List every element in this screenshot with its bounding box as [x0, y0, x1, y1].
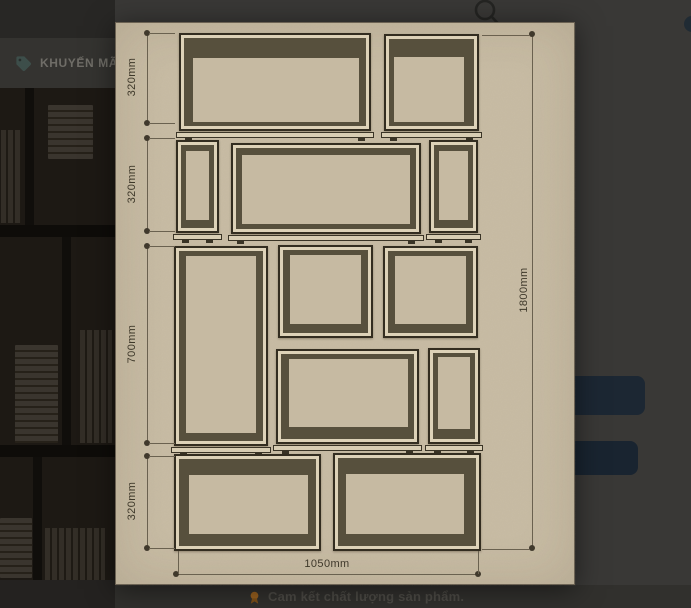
shelf-diagram: 320mm320mm700mm320mm1800mm1050mm [116, 23, 574, 584]
shelf-box [174, 246, 268, 446]
shelf-box [179, 33, 371, 131]
shelf-box [276, 349, 419, 444]
dimension-line [147, 33, 148, 123]
book-spines [1, 130, 21, 223]
dimension-line [147, 456, 148, 548]
dimension-tick [149, 33, 175, 34]
dimension-line [147, 246, 148, 443]
shelf-box-sill [273, 445, 422, 451]
dimension-tick [178, 551, 179, 574]
dimension-label: 700mm [126, 314, 138, 374]
shelf-box-opening [433, 353, 475, 439]
dimension-tick [482, 549, 530, 550]
tag-icon [14, 54, 33, 73]
shelf-box-opening [434, 145, 473, 228]
background-page-left: KHUYẾN MÃI [0, 0, 115, 608]
shelf-box-sill [176, 132, 374, 138]
shelf-divider [62, 237, 71, 445]
page: KHUYẾN MÃI Cam kết chất lượng sản phẩm. … [0, 0, 691, 608]
dimension-line [147, 138, 148, 231]
dimension-label: 320mm [126, 154, 138, 214]
book-stack [15, 345, 58, 443]
dimension-tick [149, 456, 175, 457]
lightbox-image: 320mm320mm700mm320mm1800mm1050mm [115, 22, 575, 585]
dimension-dot [529, 545, 535, 551]
dimension-line [532, 34, 533, 548]
shelf-box [176, 140, 219, 233]
dimension-tick [149, 123, 175, 124]
dimension-tick [482, 35, 530, 36]
dimension-tick [149, 231, 175, 232]
quality-note: Cam kết chất lượng sản phẩm. [268, 589, 464, 604]
shelf-box-opening [388, 251, 473, 333]
header-area [0, 0, 115, 38]
shelf-board [0, 225, 115, 237]
shelf-box-sill [381, 132, 482, 138]
shelf-box [428, 348, 480, 444]
shelf-box [429, 140, 478, 233]
shelf-box-opening [338, 458, 476, 546]
photo-floor [0, 580, 115, 608]
shelf-box-sill [228, 235, 424, 241]
dimension-tick [149, 548, 175, 549]
shelf-box [383, 246, 478, 338]
dimension-tick [149, 138, 175, 139]
shelf-box [231, 143, 421, 234]
dimension-tick [149, 443, 175, 444]
shelf-box-sill [173, 234, 222, 240]
promo-label: KHUYẾN MÃI [40, 56, 115, 70]
shelf-box [333, 453, 481, 551]
shelf-box-opening [281, 354, 414, 439]
book-spines [80, 330, 112, 443]
dimension-line [176, 574, 478, 575]
book-stack [0, 518, 32, 578]
shelf-board [0, 445, 115, 457]
book-spines [45, 528, 105, 580]
shelf-divider [25, 88, 34, 225]
shelf-box-opening [179, 459, 316, 546]
dimension-tick [149, 246, 175, 247]
shelf-box-opening [236, 148, 416, 229]
shelf-box-sill [425, 445, 483, 451]
shelf-box [384, 34, 479, 131]
quality-badge-icon [247, 590, 262, 605]
shelf-box-opening [389, 39, 474, 126]
book-stack [48, 105, 93, 159]
shelf-box-opening [283, 250, 368, 333]
dimension-label: 1800mm [518, 260, 530, 320]
dimension-label: 320mm [126, 471, 138, 531]
shelf-divider [33, 457, 42, 580]
shelf-box-opening [184, 38, 366, 126]
edge-circle-button[interactable] [684, 16, 691, 32]
dimension-label: 320mm [126, 47, 138, 107]
shelf-box-sill [171, 447, 271, 453]
dimension-tick [478, 551, 479, 574]
dimension-dot [529, 31, 535, 37]
shelf-box-opening [181, 145, 214, 228]
nav-item-promotions[interactable]: KHUYẾN MÃI [0, 38, 115, 88]
bookshelf-photo [0, 88, 115, 580]
shelf-box-opening [179, 251, 263, 441]
dimension-label: 1050mm [277, 558, 377, 570]
shelf-box-sill [426, 234, 481, 240]
shelf-box [174, 454, 321, 551]
shelf-box [278, 245, 373, 338]
